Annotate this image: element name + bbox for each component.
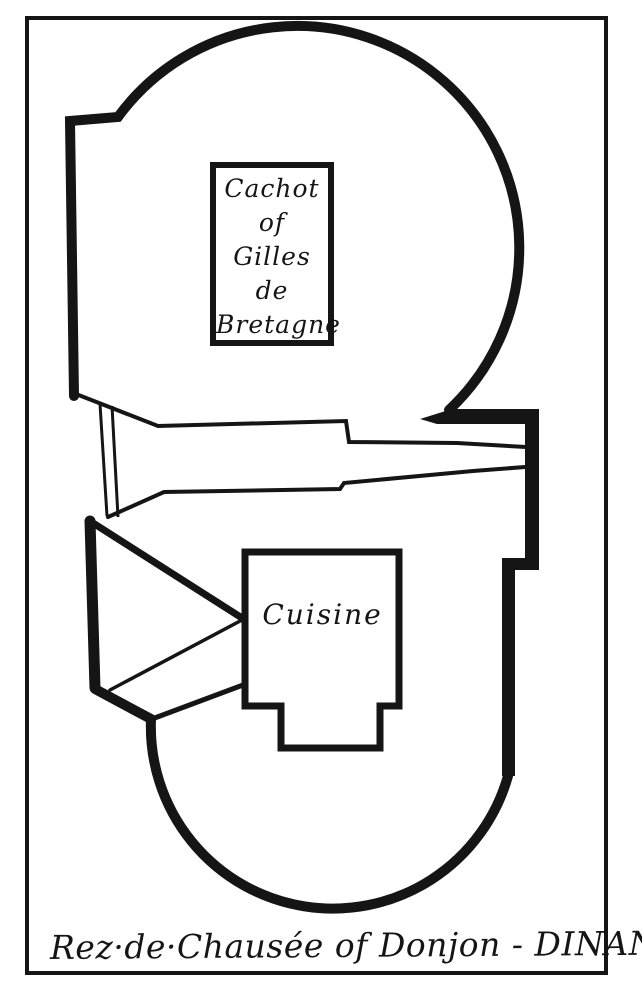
door-passage-line-1 [100,404,107,516]
cachot-label-line-5: Bretagne [216,308,328,342]
cachot-label: Cachot of Gilles de Bretagne [216,172,328,342]
wall-diagonal-upper [93,523,242,618]
cuisine-box [245,552,399,748]
cachot-label-line-4: de [216,274,328,308]
floor-plan-drawing [0,0,642,1000]
cachot-label-line-3: Gilles [216,240,328,274]
wall-diagonal-thin [110,620,242,690]
right-wall [420,409,539,776]
door-passage-line-2 [112,406,118,517]
junction-diagonal [95,689,151,719]
floor-plan-figure: Cachot of Gilles de Bretagne Cuisine Rez… [0,0,642,1000]
corridor-lower-wall [108,467,525,517]
lower-left-wall [90,521,95,688]
cachot-label-line-1: Cachot [216,172,328,206]
cachot-label-line-2: of [216,206,328,240]
figure-border [27,18,606,973]
wall-diagonal-lower [152,685,243,719]
cuisine-label: Cuisine [250,598,395,631]
figure-caption: Rez·de·Chausée of Donjon - DINAN [50,924,610,967]
